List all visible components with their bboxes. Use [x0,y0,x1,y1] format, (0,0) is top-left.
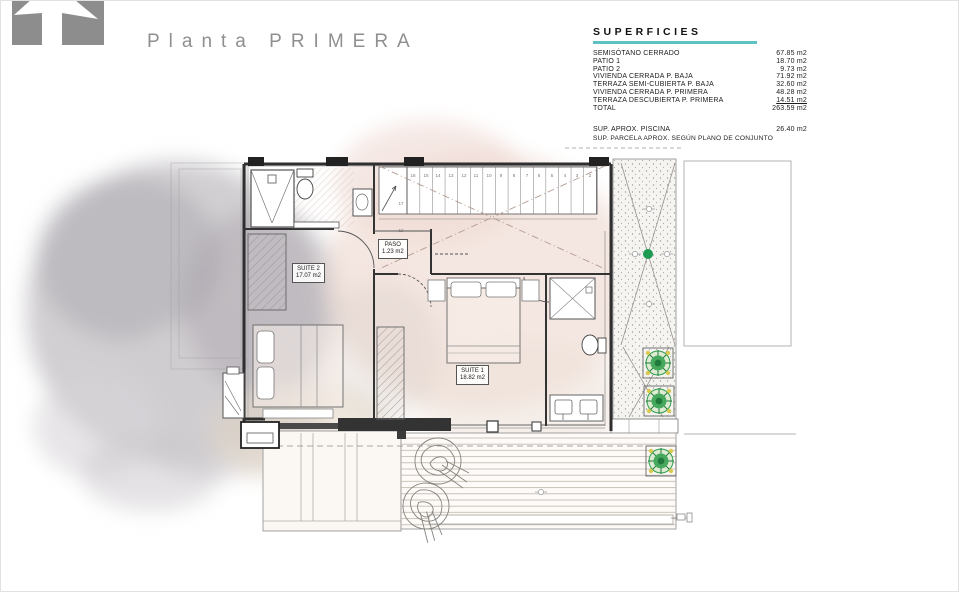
plant-icon [646,446,676,476]
stair-number: 7 [526,173,529,178]
plant-icon [644,386,674,416]
green-dot [643,249,653,259]
wall-segment [338,418,451,431]
stair-number: 11 [474,173,479,178]
stair-number: 13 [448,173,454,178]
bed [447,288,520,363]
stair-number: 17 [398,201,404,206]
wardrobe [248,234,286,310]
stair-number: 2 [589,173,592,178]
toilet [297,179,313,199]
stair-number: 15 [423,173,429,178]
stair-number: 10 [486,173,492,178]
stair-number: 19 [398,228,404,233]
room-label-suite2: SUITE 2 17.07 m2 [292,263,325,283]
stair-number: 14 [435,173,441,178]
stair-number: 4 [564,173,567,178]
stair-number: 6 [538,173,541,178]
vanity [550,395,603,421]
wardrobe [377,327,404,419]
stair-number: 8 [513,173,516,178]
stair-number: 16 [410,173,416,178]
toilet [582,335,598,355]
pool-deck [263,425,692,531]
bathroom-suite2 [251,168,372,228]
stair-number: 5 [551,173,554,178]
plant-icon [643,348,673,378]
floor-plan-drawing: 16 15 14 13 12 11 10 9 8 7 6 5 4 3 2 17 … [1,1,959,592]
stair-number: 12 [461,173,467,178]
drawing-sheet: Planta PRIMERA SUPERFICIES SEMISÓTANO CE… [0,0,959,592]
parcel-outline [684,161,796,434]
room-label-paso: PASO 1.23 m2 [378,239,408,259]
room-label-suite1: SUITE 1 18.82 m2 [456,365,489,385]
stair-number: 3 [576,173,579,178]
stair-number: 9 [500,173,503,178]
